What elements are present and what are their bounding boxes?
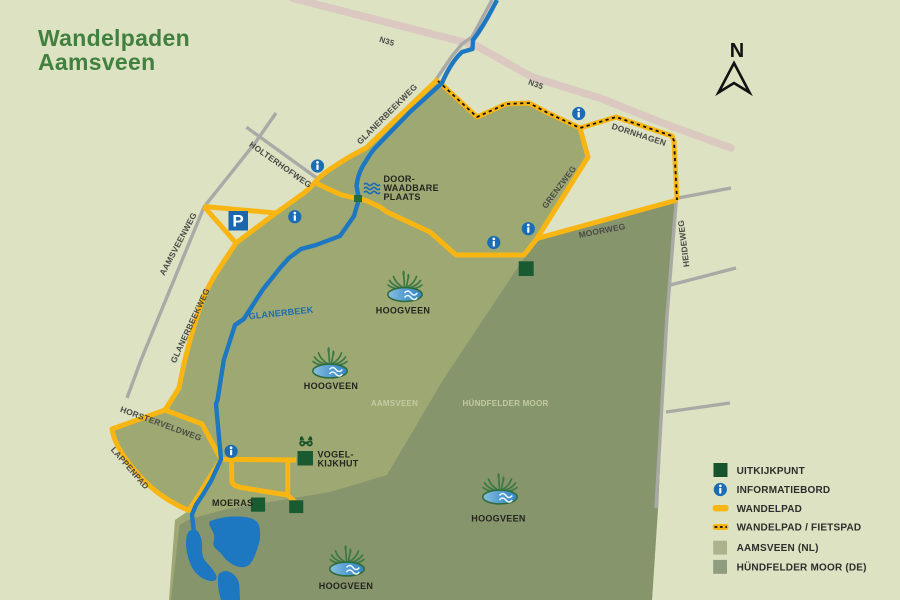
svg-text:KIJKHUT: KIJKHUT	[318, 459, 359, 469]
svg-text:MOERAS: MOERAS	[212, 498, 253, 508]
svg-text:WANDELPAD / FIETSPAD: WANDELPAD / FIETSPAD	[737, 523, 862, 534]
svg-text:AAMSVEEN (NL): AAMSVEEN (NL)	[737, 543, 819, 554]
svg-text:HOOGVEEN: HOOGVEEN	[319, 581, 373, 591]
svg-text:AAMSVEEN: AAMSVEEN	[371, 399, 418, 408]
svg-text:HÜNDFELDER MOOR: HÜNDFELDER MOOR	[463, 399, 549, 408]
svg-text:INFORMATIEBORD: INFORMATIEBORD	[737, 485, 831, 496]
svg-text:UITKIJKPUNT: UITKIJKPUNT	[737, 466, 805, 477]
svg-text:N: N	[730, 40, 744, 62]
svg-text:Wandelpaden: Wandelpaden	[38, 25, 190, 51]
svg-text:P: P	[232, 212, 243, 231]
svg-text:WANDELPAD: WANDELPAD	[737, 504, 803, 515]
svg-text:HOOGVEEN: HOOGVEEN	[376, 306, 430, 316]
svg-text:Aamsveen: Aamsveen	[38, 49, 155, 75]
svg-text:HOOGVEEN: HOOGVEEN	[471, 514, 525, 524]
svg-text:HÜNDFELDER MOOR (DE): HÜNDFELDER MOOR (DE)	[737, 560, 867, 573]
svg-text:HOOGVEEN: HOOGVEEN	[304, 381, 358, 391]
svg-text:PLAATS: PLAATS	[384, 192, 421, 202]
